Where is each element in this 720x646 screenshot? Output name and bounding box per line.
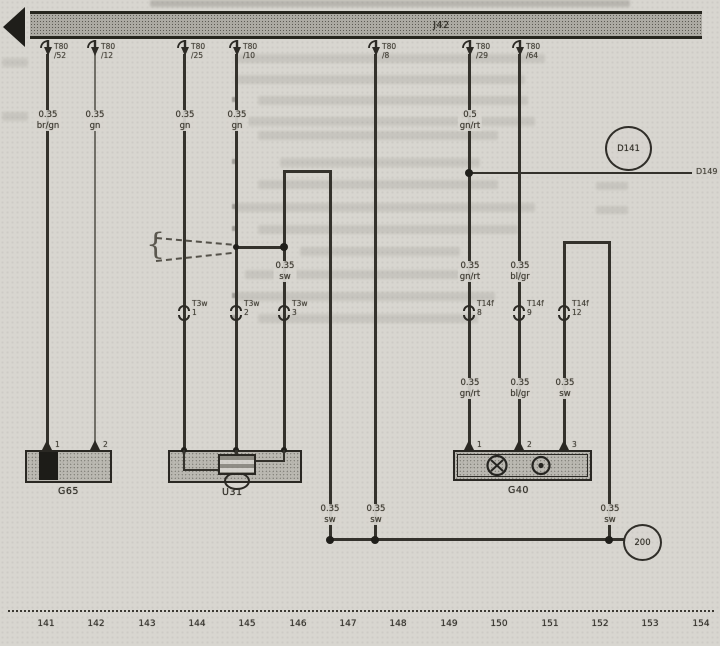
g40-symbols bbox=[453, 450, 592, 481]
wire-bridge-top bbox=[284, 170, 332, 173]
inline-connector-icon bbox=[557, 303, 571, 323]
pin-label: T80/10 bbox=[243, 43, 257, 60]
pin-label: T80/52 bbox=[54, 43, 68, 60]
track-number: 151 bbox=[541, 619, 558, 629]
terminal-number: 1 bbox=[55, 440, 60, 449]
wire-gauge-label: 0.35gn/rt bbox=[458, 261, 482, 282]
inline-connector-icon bbox=[177, 303, 191, 323]
u31-internal-wire bbox=[183, 450, 185, 471]
u31-symbol bbox=[218, 454, 256, 475]
bleed-through-text bbox=[235, 75, 525, 84]
wire-ground-mid bbox=[374, 54, 377, 541]
control-unit-bus-bar: J42 bbox=[30, 11, 702, 39]
track-number: 142 bbox=[87, 619, 104, 629]
track-number: 152 bbox=[591, 619, 608, 629]
terminal-number: 1 bbox=[477, 440, 482, 449]
u31-internal-wire bbox=[183, 469, 220, 471]
track-number: 149 bbox=[440, 619, 457, 629]
wire-gauge-label: 0.35bl/gr bbox=[508, 378, 532, 399]
pin-label: T80/25 bbox=[191, 43, 205, 60]
junction-dot bbox=[371, 536, 379, 544]
track-number: 145 bbox=[238, 619, 255, 629]
variant-brace: { bbox=[146, 230, 165, 260]
junction-dot bbox=[280, 243, 288, 251]
wire-ground-right bbox=[608, 241, 611, 541]
pin-label: T80/64 bbox=[526, 43, 540, 60]
bleed-through-text bbox=[258, 180, 498, 189]
wire-bridge-right bbox=[564, 241, 611, 244]
wire-gauge-label: 0.35gn bbox=[84, 110, 107, 131]
terminal-arrow-icon bbox=[464, 440, 474, 450]
wire-to-d149 bbox=[470, 172, 692, 174]
junction-dot bbox=[326, 536, 334, 544]
bleed-through-text bbox=[235, 117, 535, 126]
terminal-arrow-icon bbox=[42, 440, 52, 450]
wire-gauge-label: 0.35sw bbox=[365, 504, 388, 525]
inline-connector-icon bbox=[512, 303, 526, 323]
pin-label: T80/29 bbox=[476, 43, 490, 60]
junction-dot bbox=[233, 244, 239, 250]
track-number: 147 bbox=[339, 619, 356, 629]
terminal-arrow-icon bbox=[559, 440, 569, 450]
terminal-number: 2 bbox=[103, 440, 108, 449]
bleed-through-text bbox=[280, 158, 480, 167]
inline-connector-label: T14f8 bbox=[477, 300, 494, 317]
wire-gauge-label: 0.35sw bbox=[599, 504, 622, 525]
track-number: 144 bbox=[188, 619, 205, 629]
track-number: 143 bbox=[138, 619, 155, 629]
wire-branch-link bbox=[237, 246, 286, 249]
terminal-number: 2 bbox=[527, 440, 532, 449]
bleed-through-text bbox=[235, 292, 495, 301]
ground-reference-200: 200 bbox=[623, 524, 662, 561]
inline-connector-label: T14f12 bbox=[572, 300, 589, 317]
wire-gauge-label: 0.35gn bbox=[226, 110, 249, 131]
track-number: 153 bbox=[641, 619, 658, 629]
bleed-through-text bbox=[150, 0, 630, 7]
component-label-g40: G40 bbox=[508, 485, 529, 496]
wire-g40-3 bbox=[563, 241, 566, 450]
wire-gauge-label: 0.35sw bbox=[554, 378, 577, 399]
terminal-number: 3 bbox=[572, 440, 577, 449]
inline-connector-icon bbox=[462, 303, 476, 323]
inline-connector-icon bbox=[229, 303, 243, 323]
track-number: 146 bbox=[289, 619, 306, 629]
wire-gauge-label: 0.35sw bbox=[319, 504, 342, 525]
connection-reference-d141: D141 bbox=[605, 126, 652, 171]
bleed-through-text bbox=[258, 314, 478, 323]
bleed-through-text bbox=[2, 58, 28, 67]
u31-internal-wire bbox=[254, 460, 285, 462]
inline-connector-label: T3w1 bbox=[192, 300, 208, 317]
continuation-arrow-icon bbox=[3, 7, 25, 47]
terminal-arrow-icon bbox=[90, 440, 100, 450]
bleed-through-text bbox=[300, 247, 460, 256]
inline-connector-label: T3w3 bbox=[292, 300, 308, 317]
bleed-through-text bbox=[258, 225, 518, 234]
g65-sensor-element bbox=[39, 452, 58, 480]
track-number: 150 bbox=[490, 619, 507, 629]
pin-label: T80/8 bbox=[382, 43, 396, 60]
inline-connector-icon bbox=[277, 303, 291, 323]
inline-connector-label: T3w2 bbox=[244, 300, 260, 317]
connection-reference-d149: D149 bbox=[696, 168, 717, 177]
wire-gauge-label: 0.35bl/gr bbox=[508, 261, 532, 282]
track-ruler-line bbox=[8, 610, 714, 612]
track-number: 148 bbox=[389, 619, 406, 629]
bleed-through-text bbox=[2, 112, 28, 121]
bleed-through-text bbox=[596, 206, 628, 214]
terminal-arrow-icon bbox=[514, 440, 524, 450]
bleed-through-text bbox=[258, 131, 498, 140]
wire-ground-left bbox=[329, 170, 332, 541]
junction-dot bbox=[605, 536, 613, 544]
variant-dashed-line bbox=[156, 252, 232, 262]
wire-gauge-label: 0.35br/gn bbox=[35, 110, 62, 131]
bleed-through-text bbox=[258, 96, 528, 105]
control-unit-label: J42 bbox=[433, 20, 449, 31]
wire-gauge-label: 0.35gn bbox=[174, 110, 197, 131]
component-label-g65: G65 bbox=[58, 486, 79, 497]
bleed-through-text bbox=[235, 203, 535, 212]
wire-gauge-label: 0.35gn/rt bbox=[458, 378, 482, 399]
component-label-u31: U31 bbox=[222, 487, 243, 498]
junction-dot bbox=[465, 169, 473, 177]
pin-label: T80/12 bbox=[101, 43, 115, 60]
track-number: 154 bbox=[692, 619, 709, 629]
inline-connector-label: T14f9 bbox=[527, 300, 544, 317]
wire-gauge-label: 0.5gn/rt bbox=[458, 110, 482, 131]
wiring-diagram-page: J42 T80/52 T80/12 T80/25 T80/10 T80/8 T8… bbox=[0, 0, 720, 646]
bleed-through-text bbox=[596, 182, 628, 190]
track-number: 141 bbox=[37, 619, 54, 629]
variant-dashed-line bbox=[156, 237, 232, 246]
wire-gauge-label: 0.35sw bbox=[274, 261, 297, 282]
